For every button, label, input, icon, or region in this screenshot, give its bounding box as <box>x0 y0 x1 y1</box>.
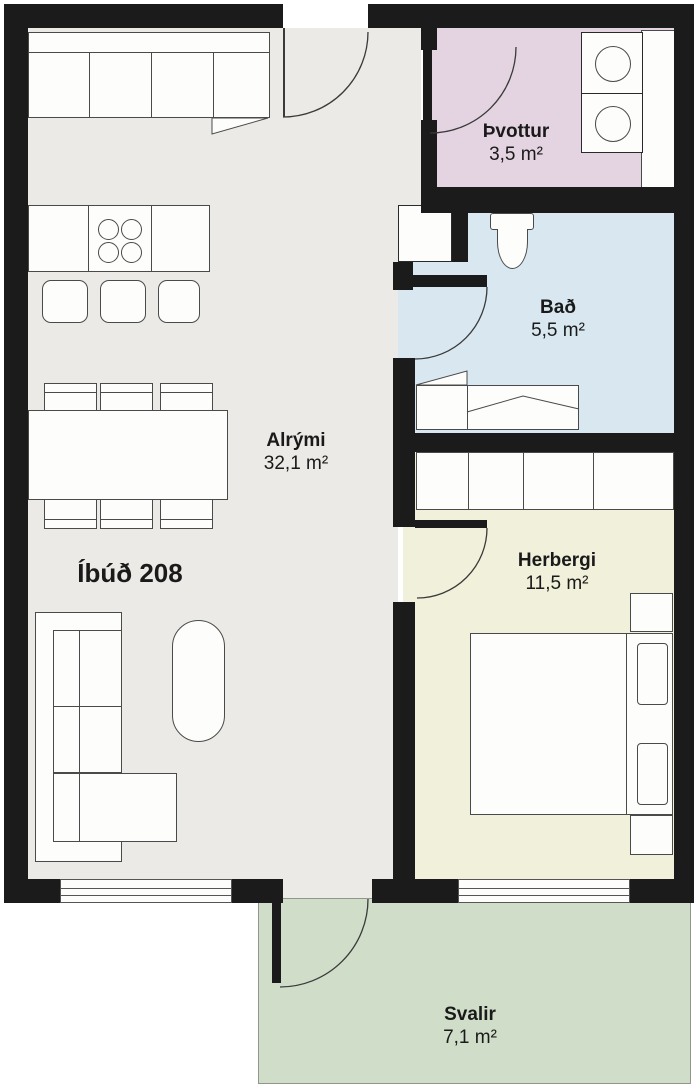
dining-chair <box>44 383 97 411</box>
wall-bottom-3 <box>372 879 458 903</box>
room-alrymi-balcony-doorway-floor <box>283 879 372 898</box>
wall-right <box>674 4 694 903</box>
room-name-bad: Bað <box>488 296 628 319</box>
bedroom-door-leaf <box>415 520 487 528</box>
wall-bottom-2 <box>232 879 283 903</box>
wall-top-right <box>368 4 694 28</box>
wall-left <box>4 4 28 903</box>
nightstand-bottom <box>630 815 673 855</box>
coffee-table <box>172 620 225 742</box>
cushion-divider <box>79 631 80 772</box>
bed-mattress <box>470 633 627 815</box>
island-divider <box>88 206 89 271</box>
room-name-thvottur: Þvottur <box>446 120 586 143</box>
room-area-alrymi: 32,1 m² <box>226 452 366 475</box>
dining-chair <box>160 383 213 411</box>
dining-chair <box>100 499 153 529</box>
wardrobe-divider <box>593 453 594 509</box>
room-svalir-floor <box>258 898 691 1084</box>
kitchen-wall-cabinets <box>28 52 270 118</box>
bedroom-window <box>458 879 630 903</box>
dryer <box>581 93 643 153</box>
floor-plan: Alrými 32,1 m² Þvottur 3,5 m² Bað 5,5 m²… <box>0 0 698 1092</box>
dining-chair <box>160 499 213 529</box>
toilet-tank <box>490 213 534 230</box>
room-name-alrymi: Alrými <box>226 429 366 452</box>
window-glazing-line <box>459 888 629 889</box>
room-label-alrymi: Alrými 32,1 m² <box>226 429 366 475</box>
washing-machine <box>581 32 643 94</box>
nightstand-top <box>630 593 673 632</box>
sofa-cushions <box>53 630 122 773</box>
bar-stool-3 <box>158 280 200 323</box>
cooktop-burner <box>98 242 119 263</box>
kitchen-island <box>28 205 210 272</box>
wall-bath-bottom <box>393 433 674 452</box>
wall-top-left <box>4 4 283 28</box>
cushion-divider <box>79 774 80 841</box>
cooktop-burner <box>121 219 142 240</box>
wardrobe <box>416 452 674 510</box>
wall-bedroom-left-top <box>393 452 415 527</box>
room-name-herbergi: Herbergi <box>487 549 627 572</box>
bar-stool-1 <box>42 280 88 323</box>
wardrobe-divider <box>523 453 524 509</box>
wardrobe-divider <box>468 453 469 509</box>
balcony-door-leaf <box>272 903 281 983</box>
laundry-door-leaf <box>423 47 432 132</box>
wall-shaft-stub <box>452 213 468 262</box>
wall-laundry-bottom <box>421 187 675 213</box>
room-bad-doorway-floor <box>398 290 415 358</box>
room-area-herbergi: 11,5 m² <box>487 572 627 595</box>
room-area-svalir: 7,1 m² <box>400 1026 540 1049</box>
window-glazing-line <box>61 895 231 896</box>
bed-pillow <box>637 643 668 705</box>
room-label-thvottur: Þvottur 3,5 m² <box>446 120 586 166</box>
cabinet-divider <box>213 53 214 117</box>
cabinet-divider <box>151 53 152 117</box>
laundry-counter <box>641 30 675 188</box>
bed-pillow <box>637 743 668 805</box>
cushion-divider <box>54 706 121 707</box>
washer-drum <box>595 46 631 82</box>
wall-bath-left-bottom <box>393 358 415 433</box>
room-label-svalir: Svalir 7,1 m² <box>400 1003 540 1049</box>
cooktop-burner <box>98 219 119 240</box>
bath-door-leaf <box>410 275 487 287</box>
dining-chair <box>44 499 97 529</box>
dining-table <box>28 410 228 500</box>
sofa-chaise <box>53 773 177 842</box>
bathroom-vanity-left <box>416 385 468 430</box>
window-glazing-line <box>459 895 629 896</box>
dryer-drum <box>595 106 631 142</box>
dining-chair <box>100 383 153 411</box>
room-area-bad: 5,5 m² <box>488 319 628 342</box>
cooktop-burner <box>121 242 142 263</box>
kitchen-counter-edge <box>28 32 270 53</box>
room-area-thvottur: 3,5 m² <box>446 143 586 166</box>
bar-stool-2 <box>100 280 146 323</box>
cabinet-divider <box>89 53 90 117</box>
apartment-title: Íbúð 208 <box>40 558 220 589</box>
window-glazing-line <box>61 888 231 889</box>
wall-bedroom-left-bottom <box>393 602 415 879</box>
living-room-window <box>60 879 232 903</box>
wall-bottom-1 <box>4 879 60 903</box>
island-divider <box>151 206 152 271</box>
service-shaft <box>398 205 452 262</box>
room-label-bad: Bað 5,5 m² <box>488 296 628 342</box>
room-label-herbergi: Herbergi 11,5 m² <box>487 549 627 595</box>
room-name-svalir: Svalir <box>400 1003 540 1026</box>
wall-bottom-4 <box>630 879 694 903</box>
bathroom-vanity-sink <box>467 385 579 430</box>
